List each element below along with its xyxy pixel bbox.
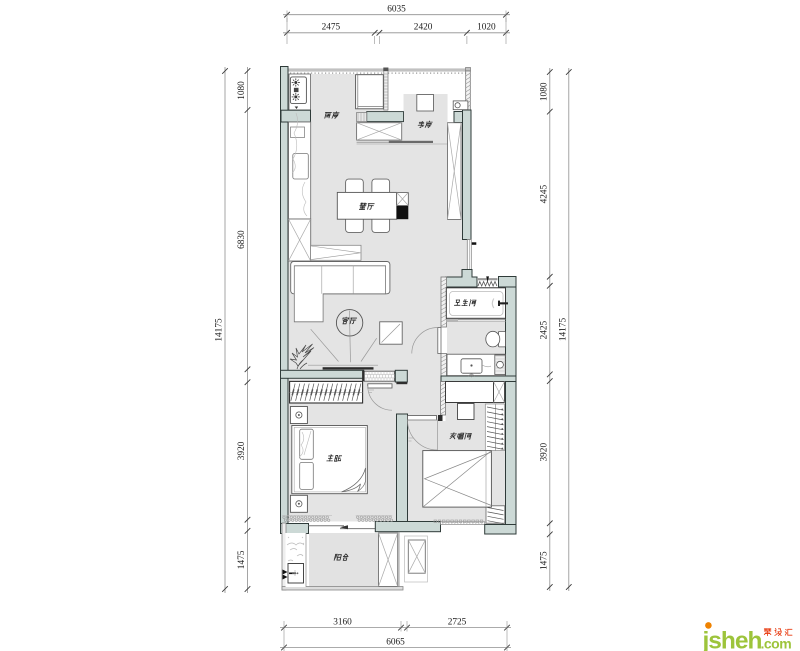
svg-text:6830: 6830	[237, 230, 247, 249]
svg-text:2420: 2420	[414, 23, 433, 33]
svg-text:2425: 2425	[539, 320, 549, 339]
svg-text:2475: 2475	[322, 23, 341, 33]
svg-text:1020: 1020	[477, 23, 496, 33]
svg-text:6065: 6065	[386, 637, 405, 647]
svg-text:14175: 14175	[558, 318, 568, 342]
svg-text:1475: 1475	[237, 550, 247, 569]
svg-text:2725: 2725	[448, 617, 467, 627]
svg-text:3160: 3160	[333, 617, 352, 627]
svg-text:jsheh: jsheh	[702, 628, 762, 651]
svg-text:1475: 1475	[539, 551, 549, 570]
svg-text:1080: 1080	[539, 82, 549, 101]
svg-text:3920: 3920	[539, 443, 549, 462]
svg-text:6035: 6035	[387, 5, 406, 15]
svg-text:4245: 4245	[539, 184, 549, 203]
svg-text:1080: 1080	[237, 81, 247, 100]
svg-text:.com: .com	[761, 636, 792, 651]
svg-text:14175: 14175	[215, 318, 225, 342]
svg-text:3920: 3920	[237, 441, 247, 460]
